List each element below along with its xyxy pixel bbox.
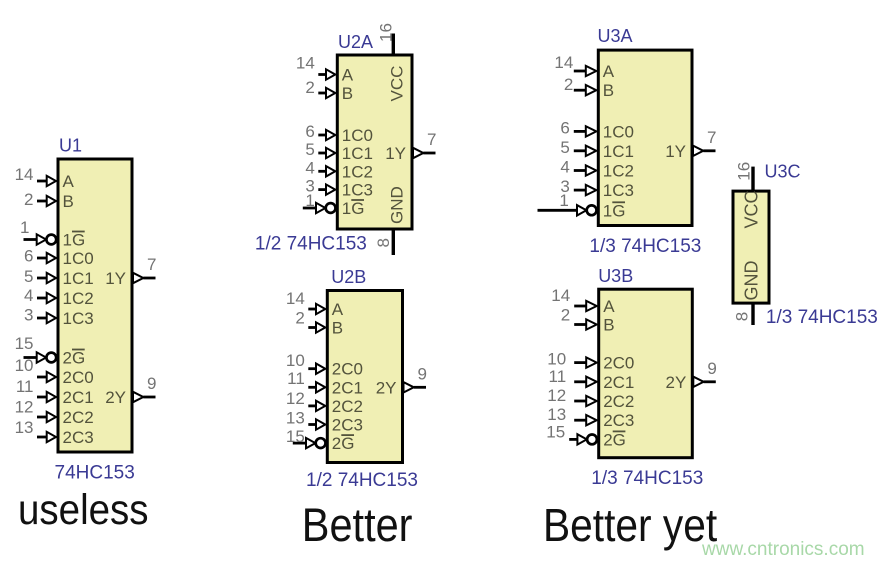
svg-text:2: 2 <box>305 78 314 97</box>
svg-text:7: 7 <box>147 255 156 274</box>
svg-text:1C1: 1C1 <box>63 269 94 288</box>
svg-text:1C2: 1C2 <box>63 289 94 308</box>
svg-text:2C3: 2C3 <box>332 416 363 435</box>
svg-text:www.cntronics.com: www.cntronics.com <box>701 539 865 560</box>
svg-text:4: 4 <box>305 158 314 177</box>
svg-text:2C3: 2C3 <box>63 428 94 447</box>
svg-text:6: 6 <box>560 118 569 137</box>
svg-text:16: 16 <box>735 162 754 181</box>
svg-text:2C2: 2C2 <box>332 397 363 416</box>
svg-text:2C2: 2C2 <box>63 408 94 427</box>
svg-text:1Y: 1Y <box>665 142 686 161</box>
svg-text:A: A <box>63 172 75 191</box>
svg-text:2: 2 <box>564 75 573 94</box>
svg-text:13: 13 <box>15 418 34 437</box>
svg-text:11: 11 <box>16 377 34 396</box>
svg-text:B: B <box>63 192 74 211</box>
svg-text:U2B: U2B <box>331 267 366 287</box>
svg-text:1C0: 1C0 <box>603 122 634 141</box>
svg-text:A: A <box>603 297 615 316</box>
svg-text:16: 16 <box>377 23 396 42</box>
svg-text:4: 4 <box>560 158 569 177</box>
svg-text:1: 1 <box>305 191 314 210</box>
svg-text:10: 10 <box>286 351 305 370</box>
svg-text:1C0: 1C0 <box>342 126 373 145</box>
svg-text:7: 7 <box>707 128 716 147</box>
svg-text:1/3 74HC153: 1/3 74HC153 <box>589 236 701 257</box>
svg-text:B: B <box>603 316 614 335</box>
svg-text:14: 14 <box>551 286 570 305</box>
svg-text:U3C: U3C <box>765 162 801 182</box>
svg-text:4: 4 <box>24 286 33 305</box>
svg-text:GND: GND <box>742 261 762 301</box>
svg-text:A: A <box>332 300 344 319</box>
svg-text:14: 14 <box>554 53 573 72</box>
svg-text:14: 14 <box>15 165 34 184</box>
svg-text:1Y: 1Y <box>385 144 406 163</box>
svg-text:2G: 2G <box>332 434 355 453</box>
svg-text:2: 2 <box>561 306 570 325</box>
svg-text:11: 11 <box>549 367 567 386</box>
svg-text:2G: 2G <box>603 430 626 449</box>
svg-text:GND: GND <box>388 186 407 224</box>
svg-text:1/2 74HC153: 1/2 74HC153 <box>255 234 367 255</box>
svg-text:1: 1 <box>559 191 568 210</box>
svg-text:13: 13 <box>286 409 305 428</box>
svg-text:7: 7 <box>427 130 436 149</box>
svg-text:Better: Better <box>302 500 413 552</box>
svg-text:1/2 74HC153: 1/2 74HC153 <box>306 470 418 491</box>
svg-text:2Y: 2Y <box>105 388 126 407</box>
svg-text:2Y: 2Y <box>666 373 687 392</box>
svg-text:15: 15 <box>546 422 565 441</box>
svg-text:U3A: U3A <box>598 26 633 46</box>
svg-text:6: 6 <box>24 246 33 265</box>
svg-text:8: 8 <box>733 312 752 321</box>
svg-text:1C2: 1C2 <box>342 162 373 181</box>
svg-text:A: A <box>603 62 615 81</box>
svg-text:1Y: 1Y <box>105 269 126 288</box>
svg-text:1G: 1G <box>342 199 365 218</box>
svg-text:5: 5 <box>305 140 314 159</box>
svg-text:5: 5 <box>24 267 33 286</box>
svg-text:2C1: 2C1 <box>63 388 94 407</box>
svg-text:13: 13 <box>547 405 566 424</box>
svg-text:2: 2 <box>295 309 304 328</box>
svg-text:2: 2 <box>24 190 33 209</box>
svg-text:15: 15 <box>286 427 305 446</box>
svg-text:14: 14 <box>286 289 305 308</box>
svg-text:VCC: VCC <box>388 66 407 102</box>
svg-text:10: 10 <box>547 350 566 369</box>
svg-text:15: 15 <box>15 334 34 353</box>
svg-text:12: 12 <box>15 398 34 417</box>
svg-text:1C3: 1C3 <box>342 181 373 200</box>
svg-text:11: 11 <box>287 369 305 388</box>
svg-text:12: 12 <box>286 389 305 408</box>
svg-text:1G: 1G <box>63 231 86 250</box>
svg-text:U3B: U3B <box>598 266 633 286</box>
svg-text:2C2: 2C2 <box>603 392 634 411</box>
svg-text:1/3 74HC153: 1/3 74HC153 <box>591 468 703 489</box>
svg-text:9: 9 <box>147 374 156 393</box>
svg-text:2C0: 2C0 <box>63 368 94 387</box>
svg-text:2C0: 2C0 <box>603 354 634 373</box>
svg-text:B: B <box>603 81 614 100</box>
svg-text:6: 6 <box>305 122 314 141</box>
svg-text:2Y: 2Y <box>376 378 397 397</box>
svg-text:74HC153: 74HC153 <box>55 463 135 484</box>
svg-text:10: 10 <box>15 356 34 375</box>
svg-text:1C3: 1C3 <box>603 181 634 200</box>
svg-text:9: 9 <box>418 364 427 383</box>
svg-text:Better yet: Better yet <box>543 500 717 552</box>
svg-text:2C1: 2C1 <box>332 378 363 397</box>
svg-text:useless: useless <box>18 485 149 533</box>
svg-text:2C1: 2C1 <box>603 373 634 392</box>
svg-text:A: A <box>342 66 354 85</box>
svg-text:2C0: 2C0 <box>332 360 363 379</box>
svg-text:U2A: U2A <box>338 32 373 52</box>
svg-text:VCC: VCC <box>742 190 762 228</box>
svg-text:1C1: 1C1 <box>603 142 634 161</box>
svg-text:9: 9 <box>707 359 716 378</box>
svg-text:3: 3 <box>24 305 33 324</box>
svg-text:U1: U1 <box>59 136 82 156</box>
svg-text:1C2: 1C2 <box>603 162 634 181</box>
svg-text:1G: 1G <box>603 201 626 220</box>
svg-text:12: 12 <box>547 386 566 405</box>
svg-text:2G: 2G <box>63 349 86 368</box>
svg-text:1C0: 1C0 <box>63 249 94 268</box>
svg-text:5: 5 <box>560 138 569 157</box>
svg-text:2C3: 2C3 <box>603 411 634 430</box>
svg-text:B: B <box>332 319 343 338</box>
svg-text:14: 14 <box>296 54 315 73</box>
svg-text:1C3: 1C3 <box>63 309 94 328</box>
svg-text:8: 8 <box>374 238 393 247</box>
svg-text:1: 1 <box>20 218 29 237</box>
svg-text:1C1: 1C1 <box>342 144 373 163</box>
svg-text:B: B <box>342 84 353 103</box>
svg-text:1/3 74HC153: 1/3 74HC153 <box>766 307 878 328</box>
